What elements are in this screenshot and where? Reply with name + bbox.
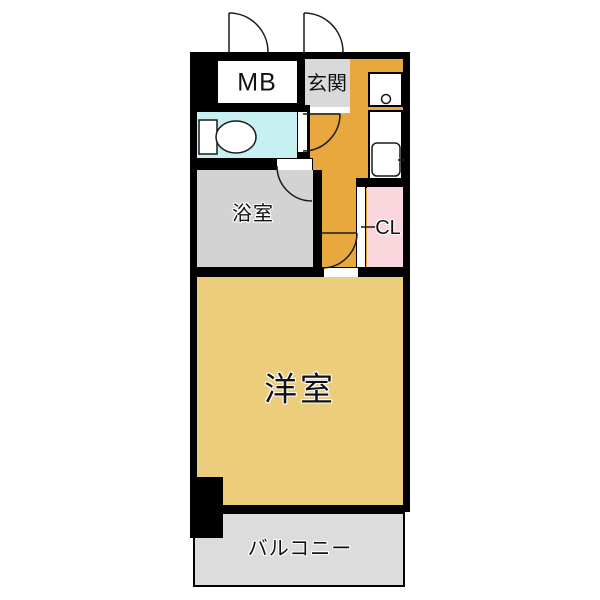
bathroom-label: 浴室 — [232, 204, 274, 224]
closet-label: CL — [375, 218, 401, 238]
entrance-door-swing-icon — [304, 13, 343, 53]
western-room-door-opening — [324, 268, 358, 277]
entrance-threshold — [303, 107, 350, 113]
wall-hall-western — [190, 267, 410, 277]
closet-door — [356, 187, 366, 267]
western-room-label: 洋室 — [264, 373, 336, 406]
balcony-label: バルコニー — [248, 539, 353, 559]
meter-box-label: MB — [237, 71, 277, 96]
kitchen-stove-unit — [368, 72, 403, 107]
mb-door-swing-icon — [229, 13, 268, 53]
wall-top-left — [190, 52, 215, 112]
wall-bathroom-right — [313, 170, 322, 277]
toilet-door-opening — [298, 112, 307, 152]
floor-plan: MB 玄関 浴室 CL 洋室 バルコニー — [0, 0, 600, 600]
toilet-room — [197, 112, 297, 158]
wall-under-mb — [197, 105, 300, 112]
entrance-label: 玄関 — [307, 74, 347, 94]
pillar — [190, 477, 223, 538]
kitchen-sink-unit — [368, 110, 403, 180]
